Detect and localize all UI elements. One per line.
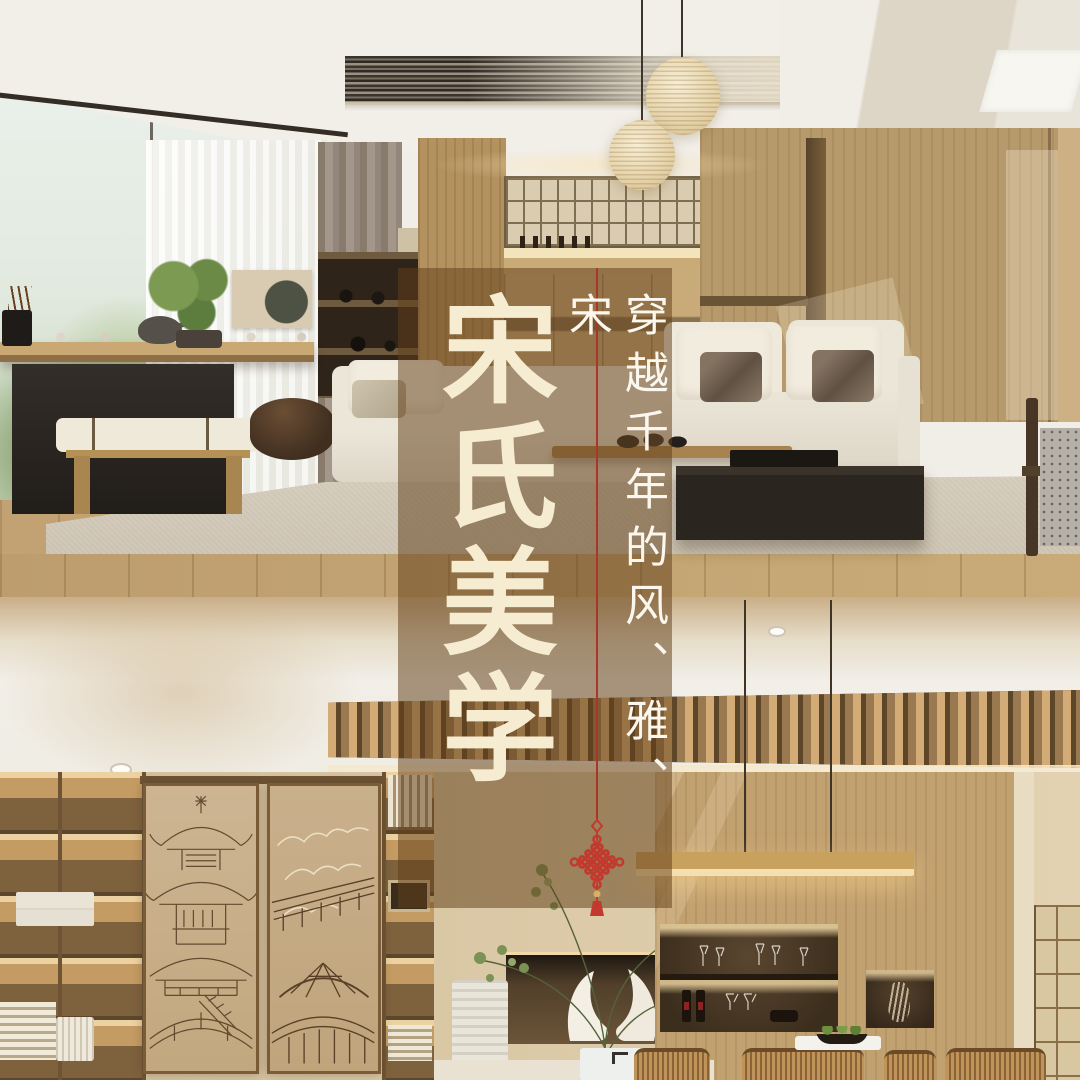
counter-glow: [504, 248, 702, 258]
bench-leg: [74, 456, 90, 514]
round-side-table: [250, 398, 334, 460]
downlight: [768, 626, 786, 637]
sofa-armrest: [898, 356, 920, 474]
bench-strap: [206, 418, 209, 452]
art-panel-landscape: [267, 783, 381, 1074]
lantern-cord: [681, 0, 683, 60]
armchair-cushion: [1040, 428, 1080, 546]
dining-chair: [634, 1048, 710, 1080]
red-divider-line: [596, 268, 598, 820]
art-panel-pagoda: [143, 783, 259, 1074]
chinese-knot-icon: [566, 818, 628, 918]
bench-leg: [226, 456, 242, 514]
fruit-bowl: [816, 1026, 868, 1044]
glass-sculpture: [888, 982, 910, 1022]
skylight-panel: [979, 50, 1080, 112]
cove-light-glow: [430, 148, 770, 182]
wall-corner-highlight: [1014, 772, 1034, 1080]
lantern-cord: [641, 0, 643, 124]
bench-strap: [92, 418, 95, 452]
circle-art-panel: [232, 270, 312, 328]
tea-table-top: [0, 342, 314, 362]
bench-frame: [66, 450, 250, 458]
dining-bench: [742, 1048, 864, 1080]
pendant-cord: [744, 600, 746, 852]
armchair-frame: [1026, 398, 1038, 556]
dining-chair: [946, 1048, 1046, 1080]
dining-chair: [884, 1050, 936, 1080]
utensil-cup: [2, 310, 32, 346]
paper-lantern-small: [609, 120, 675, 190]
tagline-vertical: 穿越千年的风、雅、宋: [614, 292, 670, 828]
coffee-table: [676, 466, 924, 540]
lit-wall-edge: [1058, 128, 1080, 422]
faucet: [612, 1052, 628, 1064]
table-tray: [730, 450, 838, 467]
poster-canvas: 宋氏美学 穿越千年的风、雅、宋: [0, 0, 1080, 1080]
bonsai-pot: [176, 330, 222, 348]
shelf-frame: [382, 772, 386, 1080]
knot-bead: [594, 891, 601, 898]
ridged-vase: [56, 1017, 94, 1061]
pendant-cord: [830, 600, 832, 852]
satin-pillow: [812, 350, 874, 402]
wine-display-niche: [660, 924, 838, 1032]
ceiling-warm-tint: [0, 597, 360, 787]
book-stack: [0, 1002, 56, 1060]
linear-pendant-light: [636, 852, 914, 876]
storage-boxes: [16, 892, 94, 926]
headline-vertical: 宋氏美学: [424, 290, 556, 810]
satin-pillow: [700, 352, 762, 402]
bench-cushion: [56, 418, 260, 452]
small-bottles: [520, 236, 592, 248]
